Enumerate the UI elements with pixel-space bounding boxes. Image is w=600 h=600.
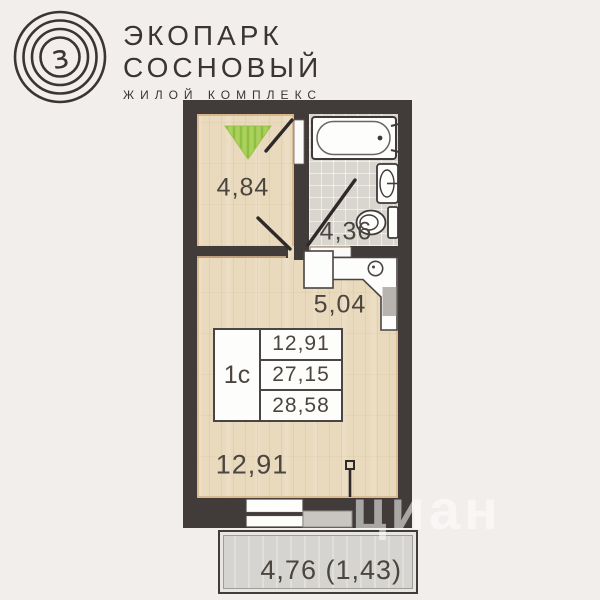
table-row-living-area: 12,91: [261, 330, 341, 361]
area-label-hall-kitchen: 5,04: [314, 291, 367, 320]
wall-right: [398, 100, 412, 528]
wall-left: [183, 100, 197, 528]
table-row-total-area: 28,58: [261, 391, 341, 420]
logo-title-line1: ЭКОПАРК: [123, 20, 322, 52]
wall-under-bath-right: [350, 246, 398, 258]
balcony-area-label: 4,76 (1,43): [260, 555, 402, 586]
logo-rings-icon: з: [8, 6, 118, 110]
apartment-info-table: 1с 12,91 27,15 28,58: [213, 328, 343, 422]
watermark: циан: [352, 477, 502, 542]
apartment-type-label: 1с: [215, 330, 261, 420]
logo-mark-icon: з: [48, 37, 71, 77]
apartment-areas: 12,91 27,15 28,58: [261, 330, 341, 420]
wall-under-room: [197, 246, 288, 258]
logo-text: ЭКОПАРК СОСНОВЫЙ ЖИЛОЙ КОМПЛЕКС: [123, 20, 322, 102]
wall-top: [183, 100, 412, 114]
wall-divider-room-bath: [294, 114, 309, 260]
area-label-room-top-left: 4,84: [217, 174, 270, 203]
table-row-apartment-area: 27,15: [261, 361, 341, 392]
area-label-bathroom: 4,36: [320, 218, 373, 247]
floor-plan-page: з ЭКОПАРК СОСНОВЫЙ ЖИЛОЙ КОМПЛЕКС: [0, 0, 600, 600]
logo-title-line2: СОСНОВЫЙ: [123, 52, 322, 84]
area-label-living-room: 12,91: [216, 450, 289, 481]
